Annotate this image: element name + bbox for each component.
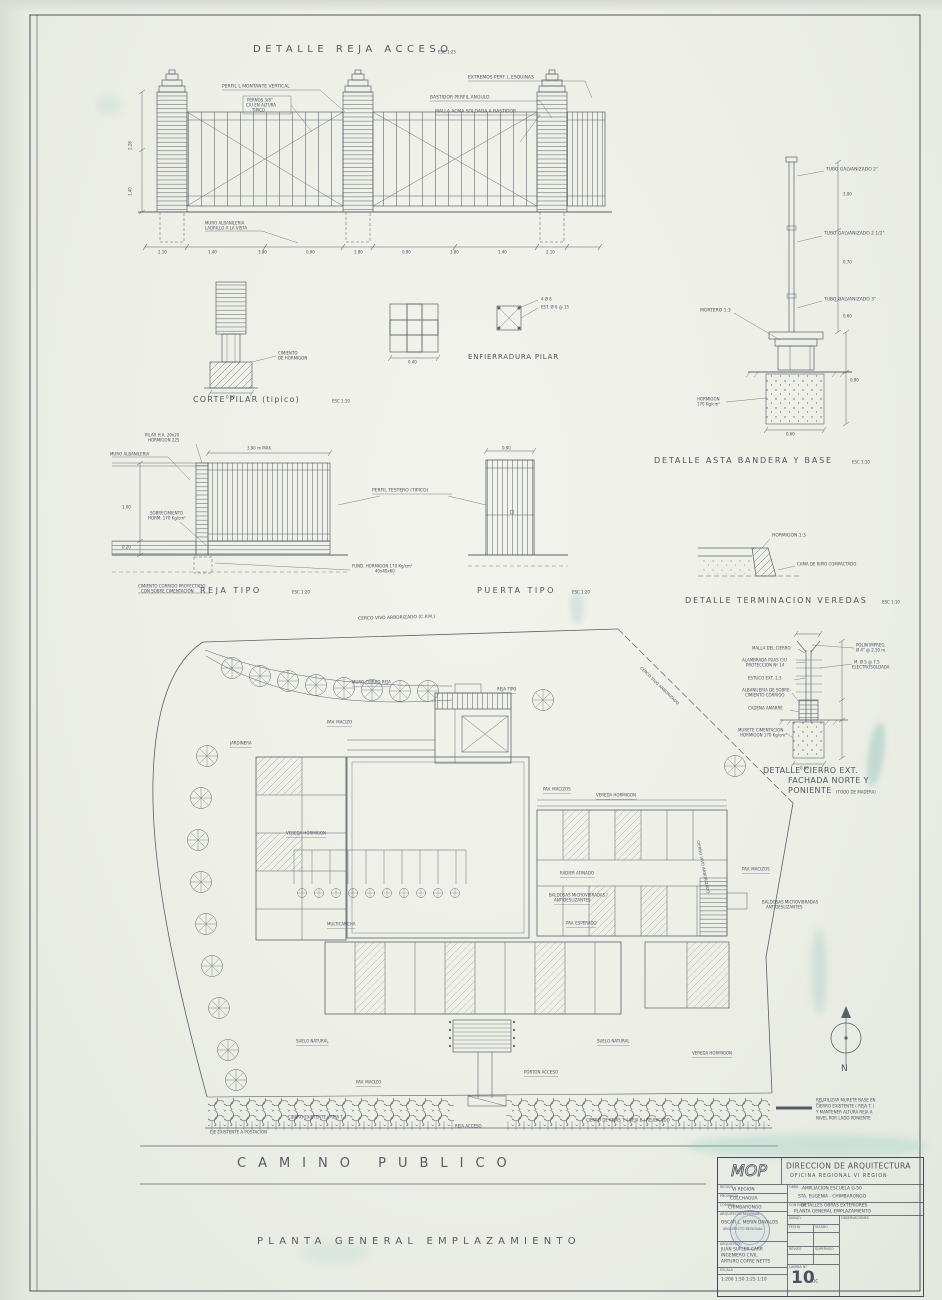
north-compass <box>831 1006 861 1066</box>
cierro-note: CADENA AMARRE <box>748 706 783 711</box>
fence-note-extremos: EXTREMOS PERF. L ESQUINAS <box>468 75 534 81</box>
sheet-title-detalle-reja: DETALLE REJA ACCESO <box>253 44 453 57</box>
dim-label: 3.80 <box>450 250 459 255</box>
enfierradura-note: EST. Ø 6 @ 15 <box>541 305 569 310</box>
field-label: DIBUJO <box>789 1216 801 1220</box>
caption-puerta-tipo: PUERTA TIPO <box>477 586 556 596</box>
corte-pilar <box>204 282 276 396</box>
field-value: AMPLIACION ESCUELA G-50 <box>802 1186 862 1191</box>
plan-label: EJE EXISTENTE A POSTACION <box>210 1130 267 1135</box>
cierro-note: HORMIGON 170 Kg/cm² <box>740 733 787 738</box>
field-value: ARTURO COFRE NETTS <box>721 1259 770 1264</box>
plan-label: PAV. MACIZOS <box>742 867 770 873</box>
plan-label: PORTON ACCESO <box>524 1070 558 1076</box>
plan-label: PAV. ESPERADO <box>566 921 597 927</box>
flagpole-detail <box>726 157 852 433</box>
cierro-note: MALLA DEL CIERRO <box>752 646 791 651</box>
reja-note-pilar: HORMIGON 225 <box>148 438 179 443</box>
cierro-ext-detail <box>779 631 854 767</box>
reja-note-sobrecimiento: HORM. 170 Kg/cm² <box>148 516 186 521</box>
field-value: DETALLES OBRAS EXTERIORES <box>801 1203 867 1208</box>
flag-note-hormigon: 170 Kg/cm² <box>697 402 720 407</box>
legend-text: Y MANTENER ALTURA REJA A <box>816 1110 872 1115</box>
scale-note: ESC 1:25 <box>438 50 456 55</box>
plan-label: JARDINERA <box>230 741 252 747</box>
dim-label: 1.40 <box>498 250 507 255</box>
field-label: ESCALA <box>720 1268 733 1272</box>
field-label: SUPERVISO <box>815 1247 834 1251</box>
field-label: OBSERVACIONES <box>841 1216 869 1220</box>
legend-text: NIVEL POR LADO PONIENTE <box>816 1116 871 1121</box>
cierro-note: PROTECCION Nº 14 <box>746 663 784 668</box>
cierro-note: ESTUCO EXT. 1:3 <box>748 676 781 681</box>
field-value: CHIMBARONGO <box>728 1205 762 1210</box>
veredas-note-hormigon: HORMIGON 1:3 <box>772 533 806 539</box>
reja-note-cimiento: CON SOBRE CIMENTACION <box>141 589 194 594</box>
title-veredas: DETALLE TERMINACION VEREDAS <box>685 596 868 606</box>
title-block: MOP DIRECCION DE ARQUITECTURA OFICINA RE… <box>717 1157 924 1297</box>
title-detalle-asta: DETALLE ASTA BANDERA Y BASE <box>654 456 833 466</box>
title-enfierradura: ENFIERRADURA PILAR <box>468 353 559 362</box>
legend-text: REUTILIZAR MURETE BASE EN <box>816 1098 875 1103</box>
dim-label: 1.00 <box>122 505 131 510</box>
plan-label: CIERRO DE REJAS T. ( REJA 2 ) REUBICADO <box>586 1118 670 1123</box>
plan-label: VEREDA HORMIGON <box>596 793 636 799</box>
veredas-note-cama: CAMA DE RIPIO COMPACTADO <box>797 562 856 567</box>
plan-label: RADIER AFINADO <box>560 871 594 877</box>
field-value: VI REGION <box>732 1187 755 1192</box>
dim-label: 2.28 <box>128 141 133 150</box>
blueprint-sheet: DETALLE REJA ACCESO ESC 1:25 PERFIL L MO… <box>0 0 942 1300</box>
dim-label: 3.90 m MAX. <box>247 446 272 451</box>
field-label: FECHA <box>789 1225 800 1229</box>
plan-label: ANTIDESLIZANTES <box>766 905 803 910</box>
field-value: COLCHAGUA <box>730 1196 757 1201</box>
plan-label: SUELO NATURAL <box>597 1039 630 1045</box>
dim-label: 0.40 <box>408 360 417 365</box>
plan-label: CIERRO EXISTENTE ( REJA T. ) <box>288 1115 346 1120</box>
title-cierro-ext: PONIENTE <box>788 786 832 796</box>
dim-label: 1.40 <box>208 250 217 255</box>
field-label: OBRA <box>789 1185 798 1189</box>
pilar-note-cimiento: DE HORMIGON <box>278 356 307 361</box>
fence-note-malla: MALLA ACMA SOLDADA A BASTIDOR <box>435 109 516 115</box>
sheet-number-suffix: OC <box>812 1279 818 1284</box>
flag-note-tubo: TUBO GALVANIZADO 3" <box>824 297 876 303</box>
plan-label: PAV. MACIZO <box>327 720 352 726</box>
dim-label: 0.50 <box>226 395 235 400</box>
scale-note: ESC 1:20 <box>292 590 310 595</box>
fence-note-bastidor: BASTIDOR PERFIL ANGULO <box>430 95 490 101</box>
flag-note-mortero: MORTERO 1:3 <box>700 308 731 314</box>
plan-label: VEREDA HORMIGON <box>286 831 326 837</box>
plan-label: PAV. MACIZOS <box>543 787 571 793</box>
plan-label: PAV. MACIZO <box>356 1080 381 1086</box>
fence-note-pernos: TIPICO <box>252 108 265 113</box>
field-label: REVISO <box>789 1247 801 1251</box>
plan-label: MULTICANCHA <box>327 922 355 928</box>
puerta-tipo-elevation <box>468 448 568 566</box>
dim-label: 3.80 <box>354 250 363 255</box>
reja-note-muro: MURO ALBAÑILERIA <box>110 452 149 457</box>
dim-label: 0.20 <box>122 545 131 550</box>
dim-label: 2.10 <box>546 250 555 255</box>
field-label: VISADO <box>815 1225 828 1229</box>
field-value: INGENIERO CIVIL <box>721 1253 758 1258</box>
label-camino-publico: CAMINO PUBLICO <box>237 1156 519 1172</box>
sheet-number: 10 <box>791 1268 815 1288</box>
legend-text: CIERRO EXISTENTE ( REJA T. ) <box>816 1104 874 1109</box>
title-cierro-ext: DETALLE CIERRO EXT. <box>763 766 858 776</box>
scale-note: ESC 1:10 <box>882 600 900 605</box>
dim-label: 0.60 <box>843 314 852 319</box>
reja-note-fundacion: 40x40x60 <box>375 569 395 574</box>
enfierradura-note: 4 Ø 8 <box>541 297 552 302</box>
field-value: STA. EUGENIA - CHIMBARONGO <box>798 1194 866 1199</box>
plan-label: VEREDA HORMIGON <box>692 1051 732 1057</box>
title-cierro-ext-note: (TODO DE MADERA) <box>836 790 876 795</box>
dim-label: 0.70 <box>843 260 852 265</box>
dim-label: 3.00 <box>843 192 852 197</box>
dim-label: 0.90 <box>402 250 411 255</box>
mop-logo: MOP <box>718 1158 780 1183</box>
plan-label: MURO CIERRO REJA <box>352 680 391 686</box>
reja-note-perfil: PERFIL TESTERO (TIPICO) <box>372 488 428 494</box>
pilar-plan-detail <box>388 300 538 361</box>
dim-label: 1.40 <box>128 187 133 196</box>
plan-label: SUELO NATURAL <box>296 1039 329 1045</box>
flag-note-tubo: TUBO GALVANIZADO 2 1/2" <box>824 231 885 237</box>
dim-label: 3.80 <box>258 250 267 255</box>
fence-note-perfil-montante: PERFIL L MONTANTE VERTICAL <box>222 84 290 90</box>
field-label: ARQUITECTO <box>720 1242 742 1246</box>
dim-label: 0.60 <box>786 432 795 437</box>
scale-note: ESC 1:10 <box>332 399 350 404</box>
dim-label: 0.90 <box>502 446 511 451</box>
field-value: 1:200 1:50 1:25 1:10 <box>721 1277 767 1282</box>
scale-note: ESC 1:10 <box>852 460 870 465</box>
fence-note-muro: LADRILLO A LA VISTA <box>205 226 247 231</box>
drawing-linework <box>0 0 942 1300</box>
cierro-note: ELECTROSOLDADA <box>852 665 889 670</box>
field-value: JUAN SUFLER CARR <box>721 1247 763 1252</box>
field-value: PLANTA GENERAL EMPLAZAMIENTO <box>794 1209 871 1214</box>
svg-text:MOP: MOP <box>731 1161 767 1180</box>
cierro-note: CIMIENTO CORRIDO <box>745 693 784 698</box>
plan-label: REJA ACCESO <box>455 1124 482 1129</box>
veredas-detail <box>698 539 800 576</box>
title-planta-general: PLANTA GENERAL EMPLAZAMIENTO <box>257 1236 581 1249</box>
site-plan <box>140 629 793 1184</box>
org-office: OFICINA REGIONAL VI REGION <box>790 1173 888 1179</box>
caption-reja-tipo: REJA TIPO <box>200 586 262 596</box>
title-corte-pilar: CORTE PILAR (tipico) <box>193 395 300 405</box>
title-cierro-ext: FACHADA NORTE Y <box>788 776 869 786</box>
plan-label: REJA TIPO <box>497 687 516 693</box>
plan-label: ANTIDESLIZANTES <box>554 898 591 904</box>
flag-note-tubo: TUBO GALVANIZADO 2" <box>826 167 878 173</box>
scale-note: ESC 1:20 <box>572 590 590 595</box>
dim-label: 0.90 <box>306 250 315 255</box>
north-label: N <box>841 1064 848 1075</box>
dim-label: 0.90 <box>850 378 859 383</box>
dim-label: 2.10 <box>158 250 167 255</box>
cierro-note: Ø 4" @ 2.50 m <box>856 648 885 653</box>
org-name: DIRECCION DE ARQUITECTURA <box>786 1162 911 1171</box>
